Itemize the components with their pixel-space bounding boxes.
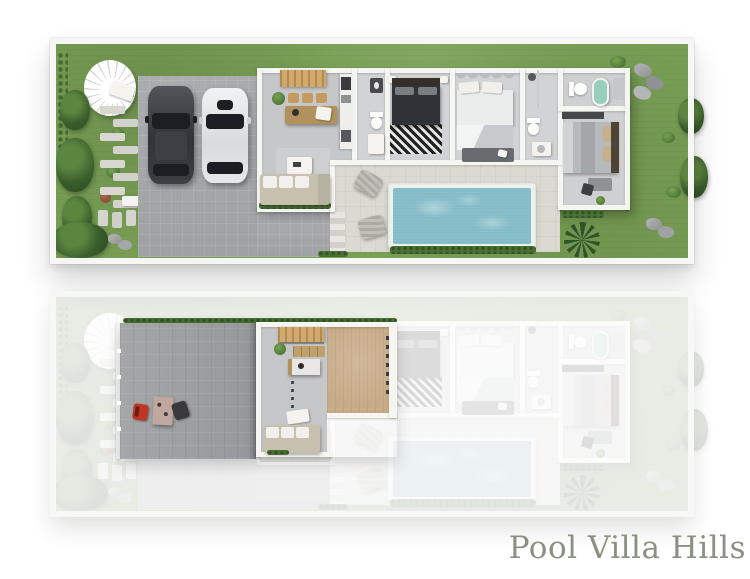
kitchen-cabinets: [293, 346, 325, 357]
wall: [327, 413, 397, 418]
kitchen-island: [288, 359, 320, 375]
houseplant: [274, 343, 286, 355]
floor-plan-ground: [50, 38, 694, 264]
floor-plan-ground-content: [50, 38, 694, 264]
stair-rail: [278, 342, 324, 344]
chair-back: [134, 406, 139, 416]
wood-deck: [327, 327, 390, 415]
red-chair: [132, 403, 149, 421]
floor-plan-upper: [50, 291, 694, 517]
sofa-hedge: [267, 450, 289, 455]
island-sink: [298, 363, 304, 369]
sofa-cushions: [266, 427, 279, 438]
interior-stairs: [278, 327, 324, 342]
roof-terrace: [120, 323, 256, 459]
wall: [389, 327, 397, 418]
table-plates: [157, 403, 161, 407]
brand-title: Pool Villa Hills: [509, 530, 746, 566]
poster: Pool Villa Hills: [0, 0, 750, 579]
wall-shelf-items: [386, 336, 389, 340]
rail-posts: [117, 349, 121, 353]
stair-void-marks: [291, 381, 294, 384]
outdoor-table: [152, 396, 173, 425]
sofa: [264, 425, 320, 453]
wall: [256, 322, 261, 457]
property-wall: [50, 38, 694, 264]
